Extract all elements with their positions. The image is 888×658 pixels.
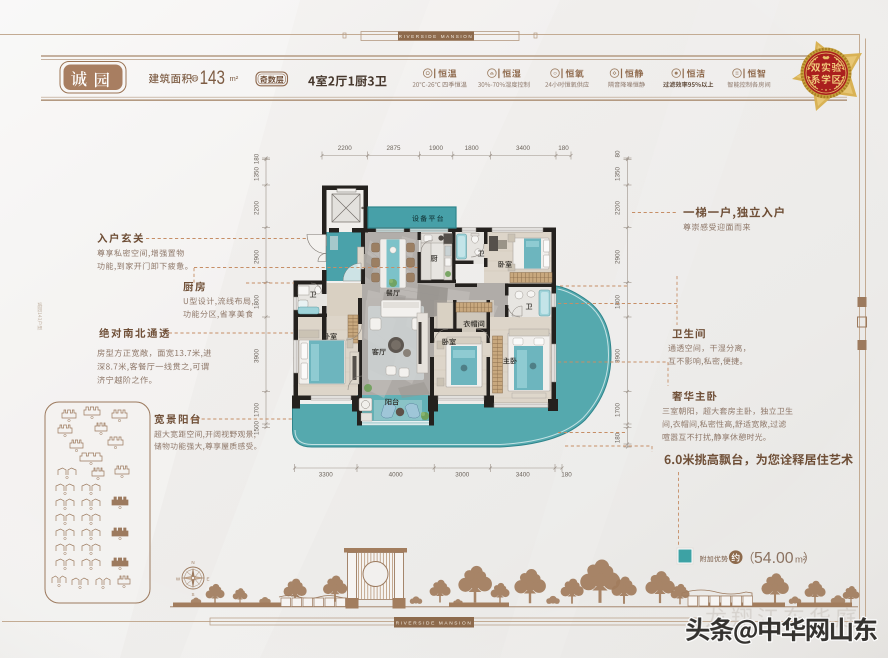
svg-text:2200: 2200 <box>254 201 261 216</box>
svg-text:180: 180 <box>558 145 569 152</box>
svg-text:3000: 3000 <box>455 472 470 479</box>
svg-text:1800: 1800 <box>254 295 261 310</box>
svg-text:3900: 3900 <box>615 349 622 364</box>
svg-text:RIVERSIDE MANSION: RIVERSIDE MANSION <box>399 34 474 39</box>
svg-text:1500: 1500 <box>254 421 261 436</box>
svg-text:1700: 1700 <box>254 403 261 418</box>
svg-text:S: S <box>191 592 194 597</box>
svg-text:1700: 1700 <box>615 403 622 418</box>
svg-text:3400: 3400 <box>516 145 531 152</box>
svg-text:m²: m² <box>230 74 239 83</box>
svg-text:N: N <box>191 560 194 565</box>
svg-text:RIVERSIDE MANSION: RIVERSIDE MANSION <box>396 621 473 627</box>
svg-text:3900: 3900 <box>254 349 261 364</box>
svg-text:3400: 3400 <box>516 472 531 479</box>
svg-text:180: 180 <box>615 432 622 443</box>
svg-text:54.00: 54.00 <box>754 550 794 567</box>
svg-text:4000: 4000 <box>389 472 404 479</box>
svg-text:3300: 3300 <box>319 472 334 479</box>
svg-text:m²: m² <box>795 555 806 566</box>
svg-text:180: 180 <box>254 153 261 164</box>
svg-text:2875: 2875 <box>386 145 401 152</box>
svg-text:1350: 1350 <box>615 167 622 182</box>
svg-text:1350: 1350 <box>254 167 261 182</box>
svg-text:2200: 2200 <box>615 201 622 216</box>
svg-text:1800: 1800 <box>465 145 480 152</box>
svg-text:2200: 2200 <box>338 145 353 152</box>
svg-text:80: 80 <box>615 150 622 158</box>
svg-text:180: 180 <box>561 472 572 479</box>
svg-text:1800: 1800 <box>615 295 622 310</box>
svg-text:143: 143 <box>200 66 225 88</box>
svg-text:2900: 2900 <box>615 250 622 265</box>
svg-text:2900: 2900 <box>254 250 261 265</box>
svg-text:1900: 1900 <box>429 145 444 152</box>
svg-text:E: E <box>206 577 209 582</box>
svg-text:O: O <box>553 71 556 76</box>
